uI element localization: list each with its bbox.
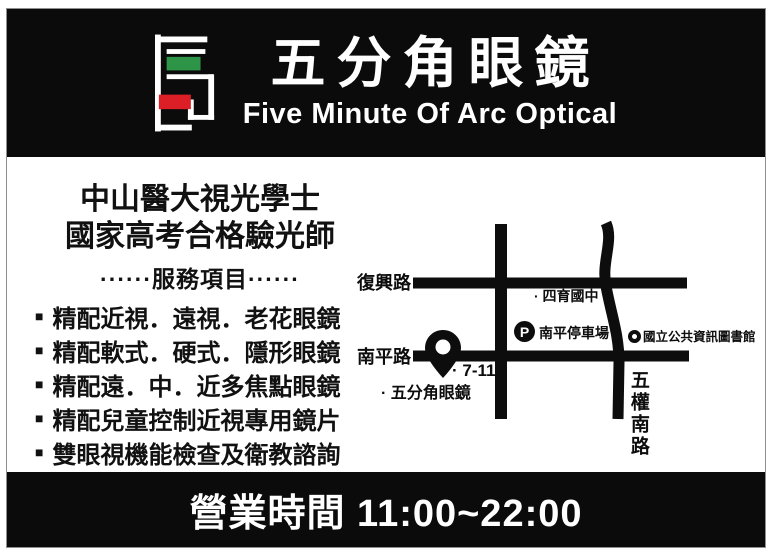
service-item-label: 精配近視．遠視．老花眼鏡 (52, 299, 340, 334)
list-item: ■ 精配軟式．硬式．隱形眼鏡 (35, 333, 365, 367)
road-label-nanping: 南平路 (357, 347, 411, 368)
road-label-wuquan: 五權南路 (627, 370, 649, 458)
poi-library-label: 國立公共資訊圖書館 (643, 330, 756, 344)
content-area: 中山醫大視光學士 國家高考合格驗光師 ······服務項目······ ■ 精配… (7, 157, 765, 472)
footer-banner: 營業時間 11:00~22:00 (7, 472, 765, 547)
parking-icon: P (514, 321, 535, 342)
shop-subtitle: Five Minute Of Arc Optical (243, 98, 617, 131)
square-bullet-icon: ■ (35, 411, 43, 425)
info-column: 中山醫大視光學士 國家高考合格驗光師 ······服務項目······ ■ 精配… (35, 181, 365, 469)
square-bullet-icon: ■ (35, 309, 43, 323)
header-titles: 五分角眼鏡 Five Minute Of Arc Optical (243, 36, 617, 131)
poi-parking-label: 南平停車場 (539, 325, 609, 341)
location-map: 復興路 南平路 五權南路 · 四育國中 P 南平停車場 國立公共資訊圖書館 · … (351, 166, 766, 464)
flyer-card: 五分角眼鏡 Five Minute Of Arc Optical 中山醫大視光學… (6, 8, 766, 548)
list-item: ■ 精配兒童控制近視專用鏡片 (35, 401, 365, 435)
service-list: ■ 精配近視．遠視．老花眼鏡 ■ 精配軟式．硬式．隱形眼鏡 ■ 精配遠．中．近多… (35, 299, 365, 469)
service-item-label: 精配軟式．硬式．隱形眼鏡 (52, 333, 340, 368)
poi-seven-eleven-label: · 7-11 (452, 361, 495, 381)
map-roads (351, 166, 766, 464)
service-item-label: 雙眼視機能檢查及衛教諮詢 (52, 435, 340, 470)
header-banner: 五分角眼鏡 Five Minute Of Arc Optical (7, 9, 765, 157)
list-item: ■ 精配遠．中．近多焦點眼鏡 (35, 367, 365, 401)
library-circle-icon (628, 330, 641, 343)
business-hours: 營業時間 11:00~22:00 (189, 482, 582, 537)
shop-title: 五分角眼鏡 (270, 36, 600, 91)
poi-shop-label: · 五分角眼鏡 (381, 385, 471, 403)
list-item: ■ 精配近視．遠視．老花眼鏡 (35, 299, 365, 333)
poi-school-label: · 四育國中 (534, 288, 599, 304)
square-bullet-icon: ■ (35, 377, 43, 391)
service-item-label: 精配遠．中．近多焦點眼鏡 (52, 367, 340, 402)
service-item-label: 精配兒童控制近視專用鏡片 (52, 401, 340, 436)
list-item: ■ 雙眼視機能檢查及衛教諮詢 (35, 435, 365, 469)
credential-line-2: 國家高考合格驗光師 (35, 218, 365, 255)
road-label-fuxing: 復興路 (357, 273, 411, 294)
square-bullet-icon: ■ (35, 445, 43, 459)
services-heading: ······服務項目······ (35, 260, 365, 294)
square-bullet-icon: ■ (35, 343, 43, 357)
brand-logo-icon (155, 32, 217, 134)
credential-line-1: 中山醫大視光學士 (35, 181, 365, 218)
